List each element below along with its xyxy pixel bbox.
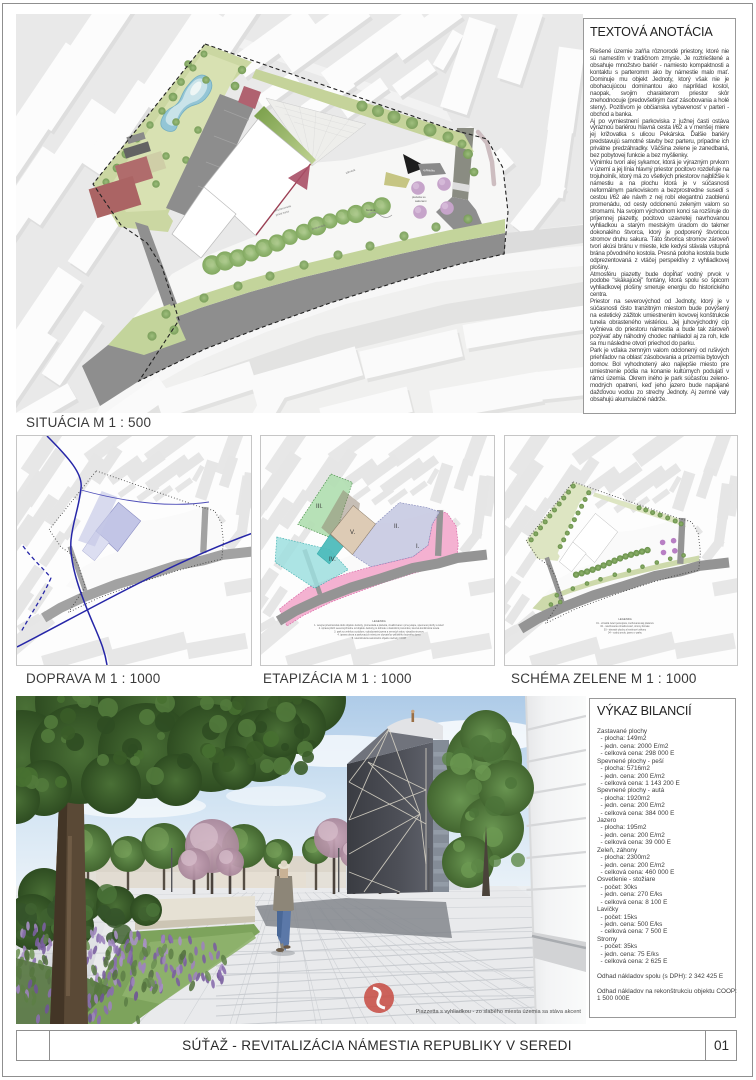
svg-text:Piazzetta s vyhliadkou - zo sl: Piazzetta s vyhliadkou - zo slabého mies… bbox=[416, 1009, 582, 1015]
svg-text:fontána: fontána bbox=[366, 208, 376, 212]
svg-text:5. rekonštrukcia samotného obj: 5. rekonštrukcia samotného objektu Jedno… bbox=[352, 637, 407, 640]
svg-text:LEGENDA: LEGENDA bbox=[618, 617, 632, 621]
svg-text:III.: III. bbox=[316, 504, 323, 510]
svg-text:04 - vodný prvok, jazero v par: 04 - vodný prvok, jazero v parku bbox=[608, 632, 643, 635]
svg-text:II.: II. bbox=[394, 524, 399, 530]
svg-text:IV.: IV. bbox=[329, 557, 336, 563]
svg-text:LEGENDA: LEGENDA bbox=[372, 619, 386, 623]
svg-text:sakurami: sakurami bbox=[415, 199, 427, 203]
svg-text:vyhliadka: vyhliadka bbox=[423, 168, 435, 173]
svg-text:V.: V. bbox=[350, 530, 355, 536]
svg-text:I.: I. bbox=[416, 544, 420, 550]
